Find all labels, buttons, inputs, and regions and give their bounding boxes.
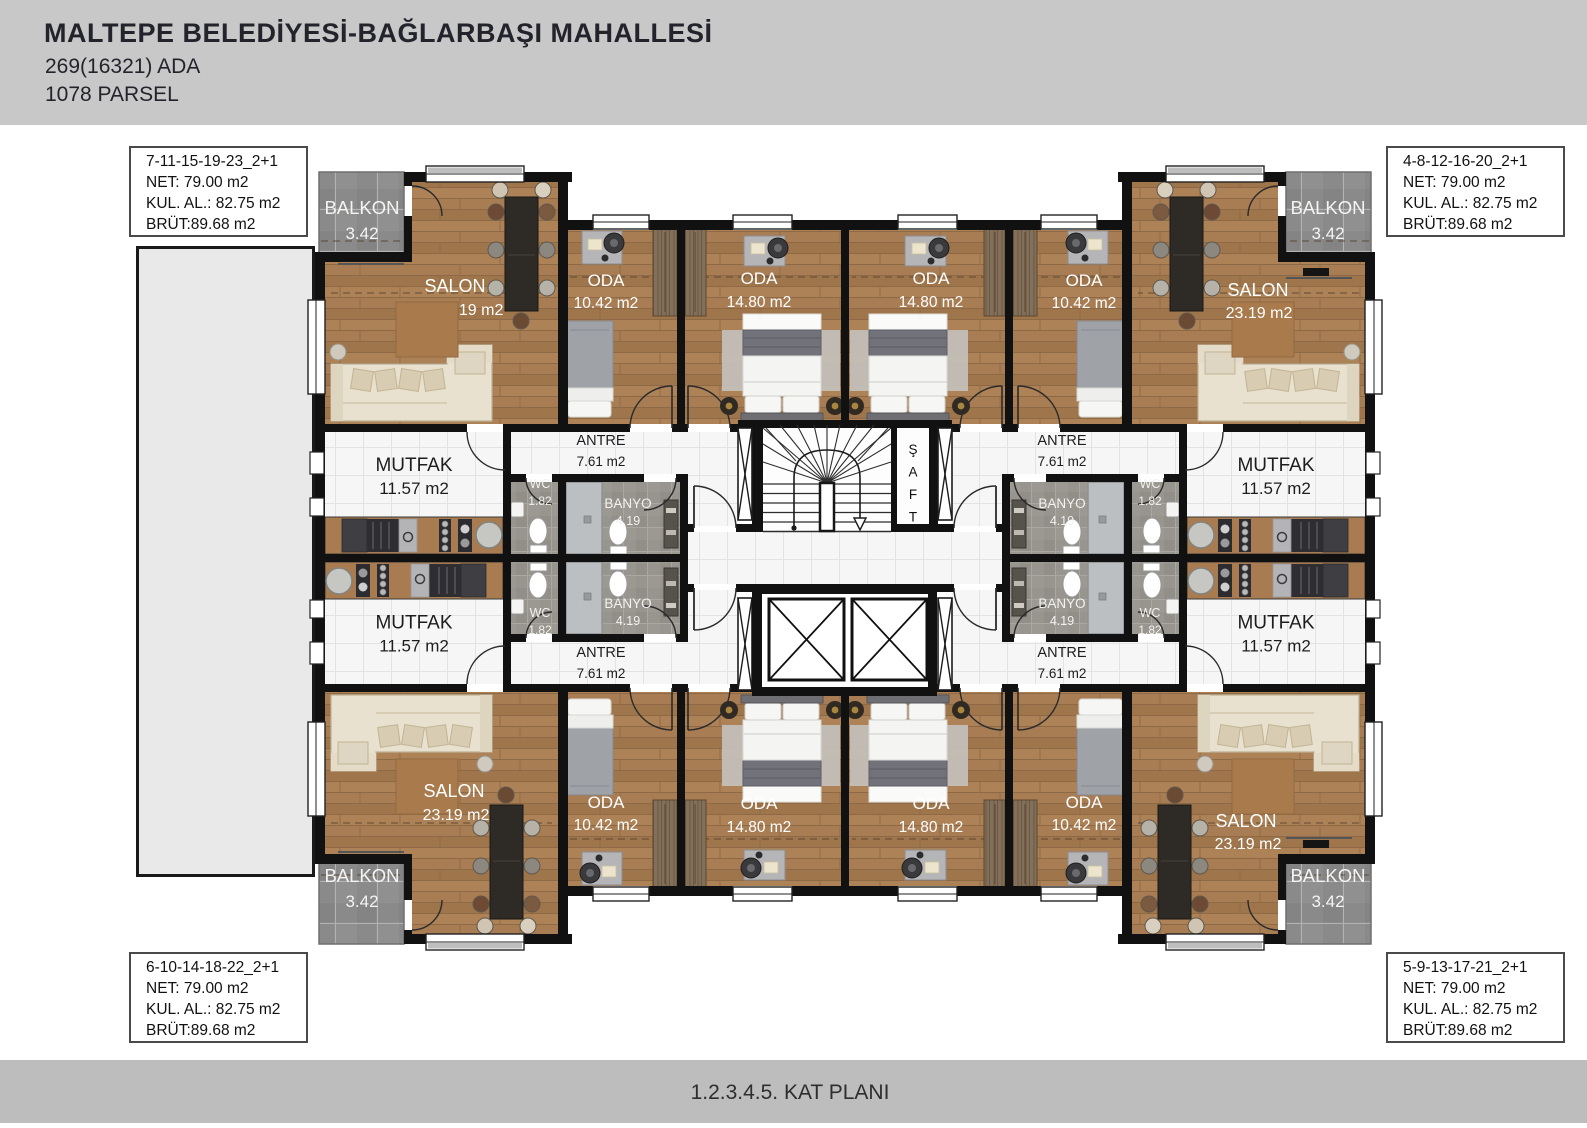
svg-text:ANTRE: ANTRE	[576, 645, 625, 661]
svg-text:ANTRE: ANTRE	[576, 433, 625, 449]
svg-text:1.82: 1.82	[528, 623, 552, 637]
svg-text:7.61 m2: 7.61 m2	[1038, 454, 1087, 469]
svg-text:7.61 m2: 7.61 m2	[577, 454, 626, 469]
svg-text:1.82: 1.82	[1138, 494, 1162, 508]
svg-text:23.19 m2: 23.19 m2	[1215, 836, 1282, 853]
svg-text:SALON: SALON	[423, 781, 484, 801]
svg-text:ODA: ODA	[741, 794, 779, 813]
svg-text:T: T	[909, 510, 917, 525]
svg-text:4.19: 4.19	[1050, 614, 1074, 628]
svg-text:BANYO: BANYO	[604, 596, 651, 611]
svg-text:NET: 79.00 m2: NET: 79.00 m2	[1403, 980, 1506, 997]
svg-text:1.82: 1.82	[1138, 623, 1162, 637]
svg-text:1.2.3.4.5. KAT PLANI: 1.2.3.4.5. KAT PLANI	[691, 1081, 890, 1104]
svg-text:BANYO: BANYO	[1038, 596, 1085, 611]
svg-text:MUTFAK: MUTFAK	[375, 613, 452, 634]
svg-text:KUL. AL.: 82.75 m2: KUL. AL.: 82.75 m2	[1403, 195, 1537, 212]
svg-text:MUTFAK: MUTFAK	[1237, 455, 1314, 476]
svg-text:MALTEPE BELEDİYESİ-BAĞLARBAŞI: MALTEPE BELEDİYESİ-BAĞLARBAŞI MAHALLESİ	[44, 17, 713, 48]
svg-text:10.42 m2: 10.42 m2	[1052, 817, 1117, 834]
svg-text:WC: WC	[1140, 477, 1161, 491]
svg-text:4-8-12-16-20_2+1: 4-8-12-16-20_2+1	[1403, 153, 1528, 170]
svg-text:11.57 m2: 11.57 m2	[1241, 637, 1311, 656]
svg-text:KUL. AL.: 82.75 m2: KUL. AL.: 82.75 m2	[1403, 1001, 1537, 1018]
svg-text:14.80 m2: 14.80 m2	[727, 819, 792, 836]
svg-text:NET: 79.00 m2: NET: 79.00 m2	[146, 174, 249, 191]
svg-text:BALKON: BALKON	[324, 865, 399, 886]
svg-text:SALON: SALON	[1215, 811, 1276, 831]
svg-text:11.57 m2: 11.57 m2	[379, 479, 449, 498]
svg-text:BALKON: BALKON	[1290, 865, 1365, 886]
svg-text:ODA: ODA	[1066, 793, 1104, 812]
svg-text:BANYO: BANYO	[604, 496, 651, 511]
svg-text:3.42: 3.42	[1311, 224, 1344, 243]
svg-text:WC: WC	[530, 606, 551, 620]
svg-text:10.42 m2: 10.42 m2	[1052, 295, 1117, 312]
svg-text:4.19: 4.19	[616, 614, 640, 628]
svg-text:MUTFAK: MUTFAK	[1237, 613, 1314, 634]
svg-text:23.19 m2: 23.19 m2	[1226, 305, 1293, 322]
svg-text:SALON: SALON	[424, 276, 485, 296]
svg-text:ODA: ODA	[588, 271, 626, 290]
svg-text:BRÜT:89.68 m2: BRÜT:89.68 m2	[146, 1021, 255, 1039]
svg-text:Ş: Ş	[908, 442, 917, 457]
svg-text:BALKON: BALKON	[1290, 197, 1365, 218]
svg-text:ODA: ODA	[913, 269, 951, 288]
svg-text:269(16321) ADA: 269(16321) ADA	[45, 55, 200, 78]
svg-text:WC: WC	[1140, 606, 1161, 620]
svg-text:1078 PARSEL: 1078 PARSEL	[45, 83, 179, 106]
svg-text:ODA: ODA	[741, 269, 779, 288]
svg-text:SALON: SALON	[1227, 280, 1288, 300]
svg-text:KUL. AL.: 82.75 m2: KUL. AL.: 82.75 m2	[146, 195, 280, 212]
svg-text:10.42 m2: 10.42 m2	[574, 817, 639, 834]
svg-text:NET: 79.00 m2: NET: 79.00 m2	[146, 980, 249, 997]
svg-text:NET: 79.00 m2: NET: 79.00 m2	[1403, 174, 1506, 191]
svg-text:7-11-15-19-23_2+1: 7-11-15-19-23_2+1	[146, 153, 278, 170]
svg-text:BRÜT:89.68 m2: BRÜT:89.68 m2	[1403, 215, 1512, 233]
svg-text:BRÜT:89.68 m2: BRÜT:89.68 m2	[146, 215, 255, 233]
svg-text:F: F	[909, 487, 917, 502]
svg-text:5-9-13-17-21_2+1: 5-9-13-17-21_2+1	[1403, 959, 1528, 976]
svg-text:3.42: 3.42	[345, 892, 378, 911]
svg-text:BANYO: BANYO	[1038, 496, 1085, 511]
svg-text:ODA: ODA	[588, 793, 626, 812]
svg-text:ANTRE: ANTRE	[1037, 645, 1086, 661]
svg-text:ODA: ODA	[1066, 271, 1104, 290]
svg-text:KUL. AL.: 82.75 m2: KUL. AL.: 82.75 m2	[146, 1001, 280, 1018]
svg-text:4.19: 4.19	[616, 514, 640, 528]
svg-text:BRÜT:89.68 m2: BRÜT:89.68 m2	[1403, 1021, 1512, 1039]
svg-text:11.57 m2: 11.57 m2	[1241, 479, 1311, 498]
svg-text:14.80 m2: 14.80 m2	[727, 294, 792, 311]
svg-text:4.19: 4.19	[1050, 514, 1074, 528]
svg-text:MUTFAK: MUTFAK	[375, 455, 452, 476]
svg-text:ANTRE: ANTRE	[1037, 433, 1086, 449]
svg-text:14.80 m2: 14.80 m2	[899, 294, 964, 311]
svg-text:ODA: ODA	[913, 794, 951, 813]
svg-text:A: A	[908, 465, 917, 480]
svg-text:WC: WC	[530, 477, 551, 491]
svg-text:3.42: 3.42	[1311, 892, 1344, 911]
svg-text:10.42 m2: 10.42 m2	[574, 295, 639, 312]
svg-text:1.82: 1.82	[528, 494, 552, 508]
svg-text:14.80 m2: 14.80 m2	[899, 819, 964, 836]
svg-text:11.57 m2: 11.57 m2	[379, 637, 449, 656]
svg-text:7.61 m2: 7.61 m2	[1038, 666, 1087, 681]
svg-text:7.61 m2: 7.61 m2	[577, 666, 626, 681]
svg-text:6-10-14-18-22_2+1: 6-10-14-18-22_2+1	[146, 959, 279, 976]
svg-text:3.42: 3.42	[345, 224, 378, 243]
svg-text:BALKON: BALKON	[324, 197, 399, 218]
